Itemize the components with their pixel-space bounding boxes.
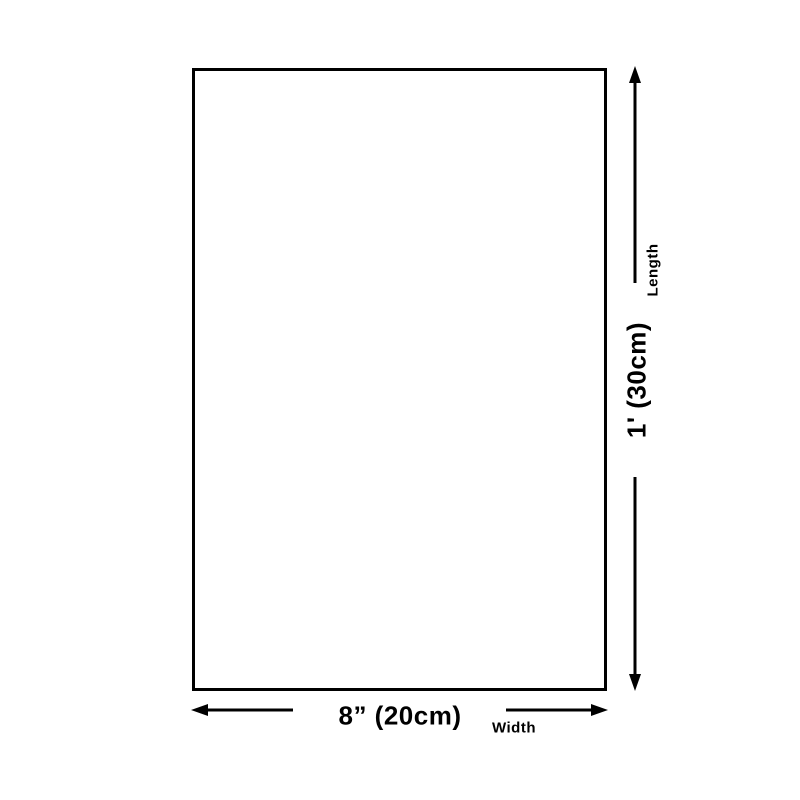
product-outline: [192, 68, 607, 691]
length-dimension-value: 1' (30cm): [622, 322, 653, 438]
arrow-left-icon: [191, 704, 293, 716]
arrow-down-icon: [629, 477, 641, 691]
dimension-diagram: 1' (30cm) Length 8” (20cm) Width: [0, 0, 800, 800]
arrow-up-icon: [629, 66, 641, 283]
width-axis-label: Width: [492, 720, 536, 737]
length-axis-label: Length: [645, 244, 662, 297]
width-dimension-value: 8” (20cm): [339, 701, 462, 732]
arrow-right-icon: [506, 704, 608, 716]
